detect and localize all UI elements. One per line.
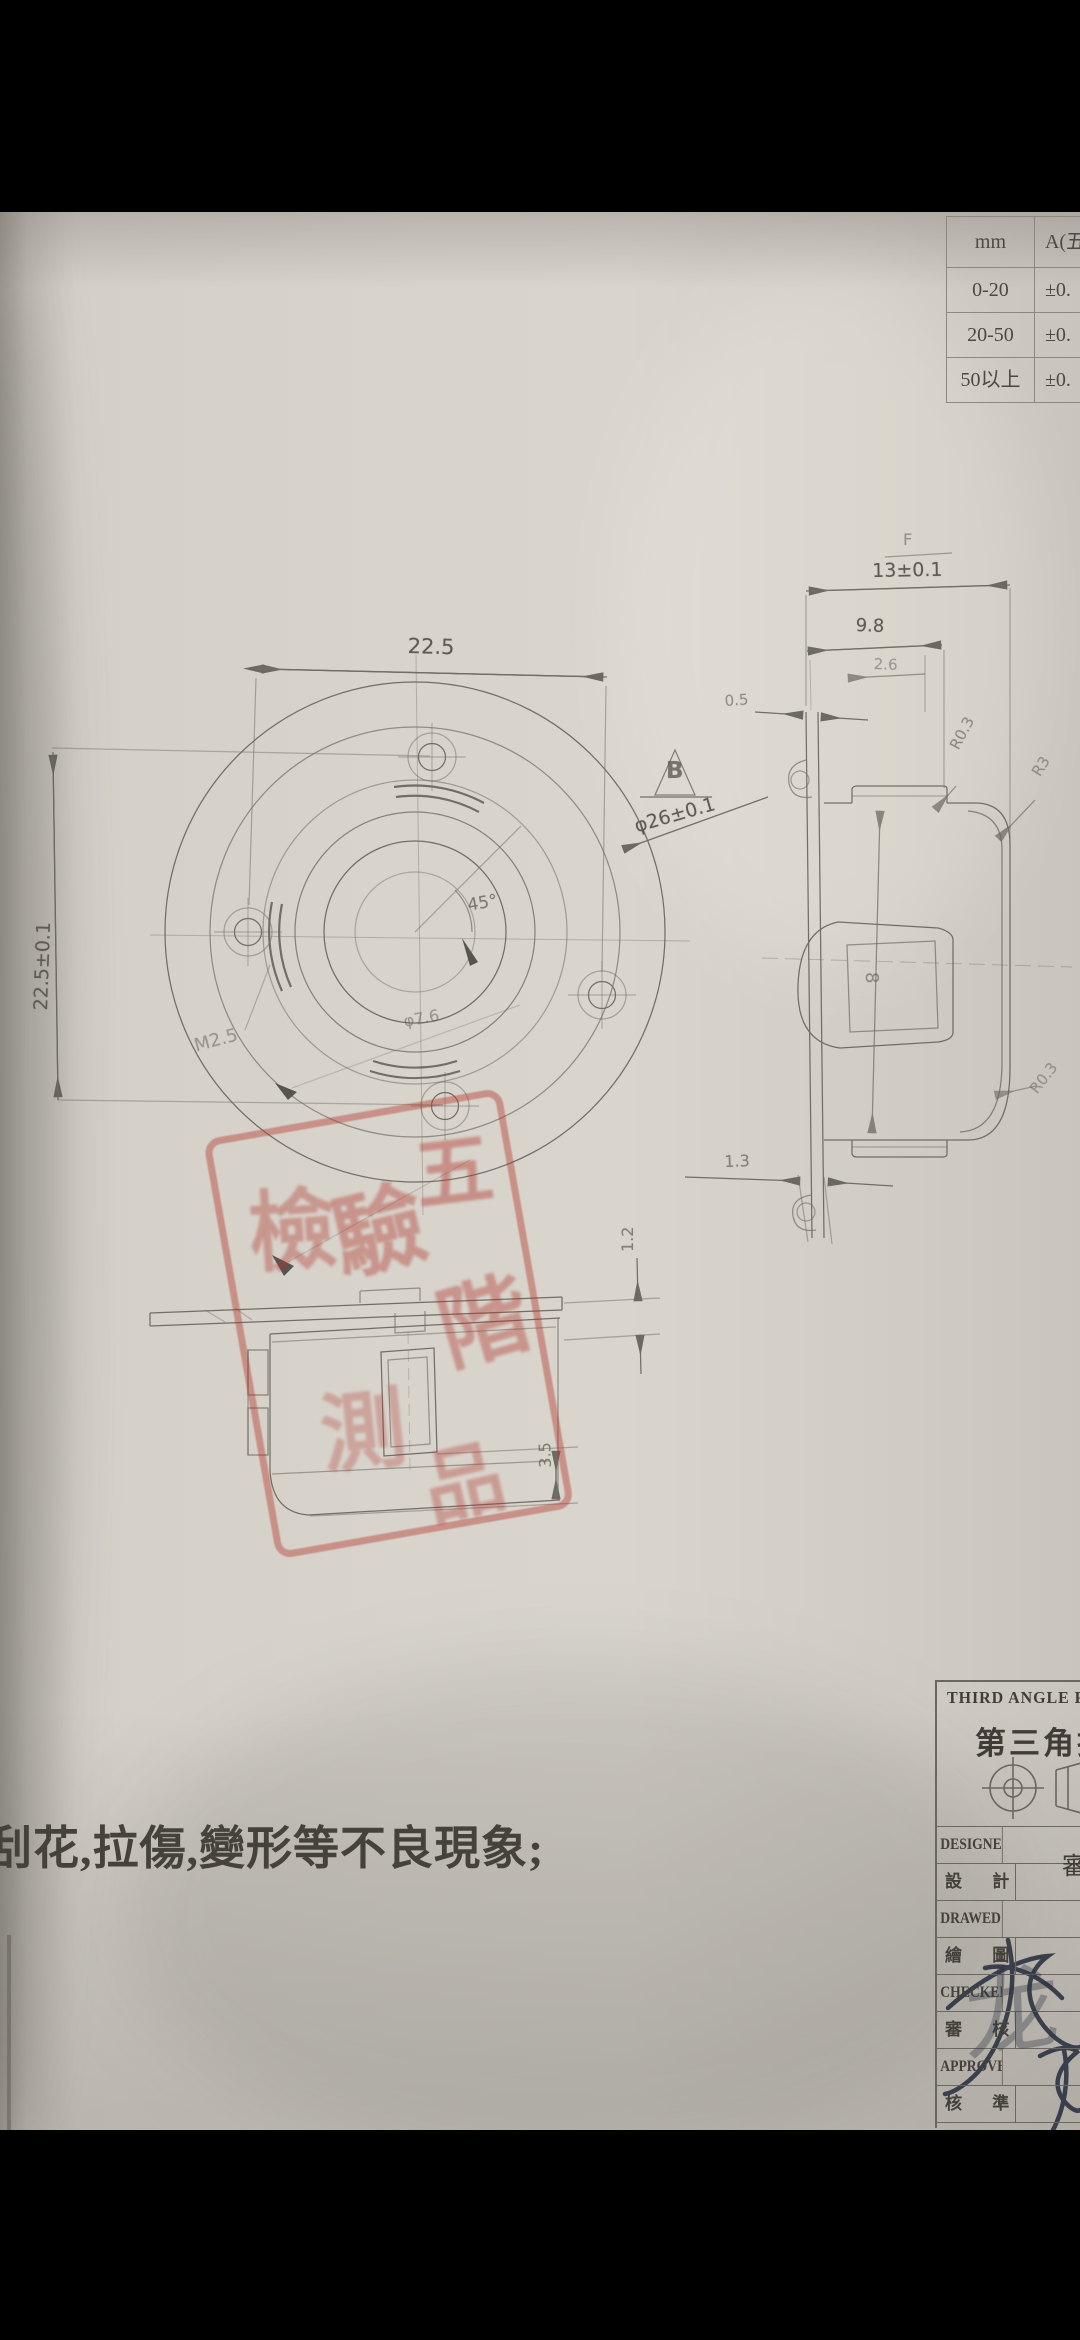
tolerance-grade-header: A(五	[1035, 217, 1080, 267]
table-row: 20-50 ±0.	[946, 312, 1080, 357]
tolerance-table: mm A(五 0-20 ±0. 20-50 ±0. 50以上 ±0.	[946, 216, 1080, 403]
range-cell: 0-20	[946, 268, 1035, 312]
tolerance-cell: ±0.	[1035, 268, 1080, 312]
datum-flag-label: B	[666, 758, 684, 784]
dim-bottom-flange: 1.3	[724, 1151, 750, 1171]
dim-side-width: 13±0.1	[872, 559, 943, 582]
phone-screenshot: 22.5 22.5±0.1 45° B φ26±0.1 M2.5 φ7.6 F …	[0, 0, 1080, 2340]
dim-front-horizontal: 22.5	[407, 634, 454, 659]
bottom-black-bar	[0, 2130, 1080, 2340]
title-row: DESIGNED	[935, 1826, 1080, 1863]
row-label-en: DESIGNED	[935, 1827, 1003, 1863]
top-black-bar	[0, 0, 1080, 212]
range-cell: 50以上	[946, 358, 1035, 402]
projection-title-en: THIRD ANGLE PROJECTION	[947, 1688, 1080, 1708]
inspection-note: 刮花,拉傷,變形等不良現象;	[0, 1812, 544, 1878]
range-cell: 20-50	[946, 313, 1035, 357]
tolerance-unit-header: mm	[946, 217, 1035, 267]
projection-title-zh: 第三角投影	[975, 1718, 1080, 1763]
stamp-character: 品	[410, 1412, 514, 1543]
tolerance-cell: ±0.	[1035, 358, 1080, 402]
row-label-en: DRAWED	[935, 1901, 1003, 1937]
title-row: DRAWED	[935, 1900, 1080, 1937]
table-row: 0-20 ±0.	[946, 267, 1080, 312]
row-label-zh: 核 準	[935, 2086, 1016, 2122]
bore-label: 8	[861, 972, 882, 983]
title-row: 設 計	[935, 1863, 1080, 1900]
tolerance-cell: ±0.	[1035, 313, 1080, 357]
stamp-character: 五	[408, 1106, 499, 1227]
dim-gap-label: 1.2	[618, 1227, 637, 1252]
dim-side-step: 2.6	[873, 655, 897, 674]
dim-flange-thickness: 0.5	[724, 690, 749, 710]
row-label-zh: 設 計	[935, 1864, 1016, 1900]
dim-side-inner: 9.8	[855, 615, 884, 637]
partial-character: 審	[1062, 1846, 1080, 1881]
signature-glyph: 龙	[962, 1925, 1061, 2082]
drawing-linework	[0, 0, 1080, 2340]
table-row: 50以上 ±0.	[946, 357, 1080, 403]
title-row: 核 準	[935, 2085, 1080, 2123]
stamp-character: 測	[313, 1357, 412, 1490]
dim-front-vertical: 22.5±0.1	[30, 922, 55, 1011]
stamp-character: 階	[420, 1239, 542, 1389]
finish-mark: F	[903, 530, 912, 549]
